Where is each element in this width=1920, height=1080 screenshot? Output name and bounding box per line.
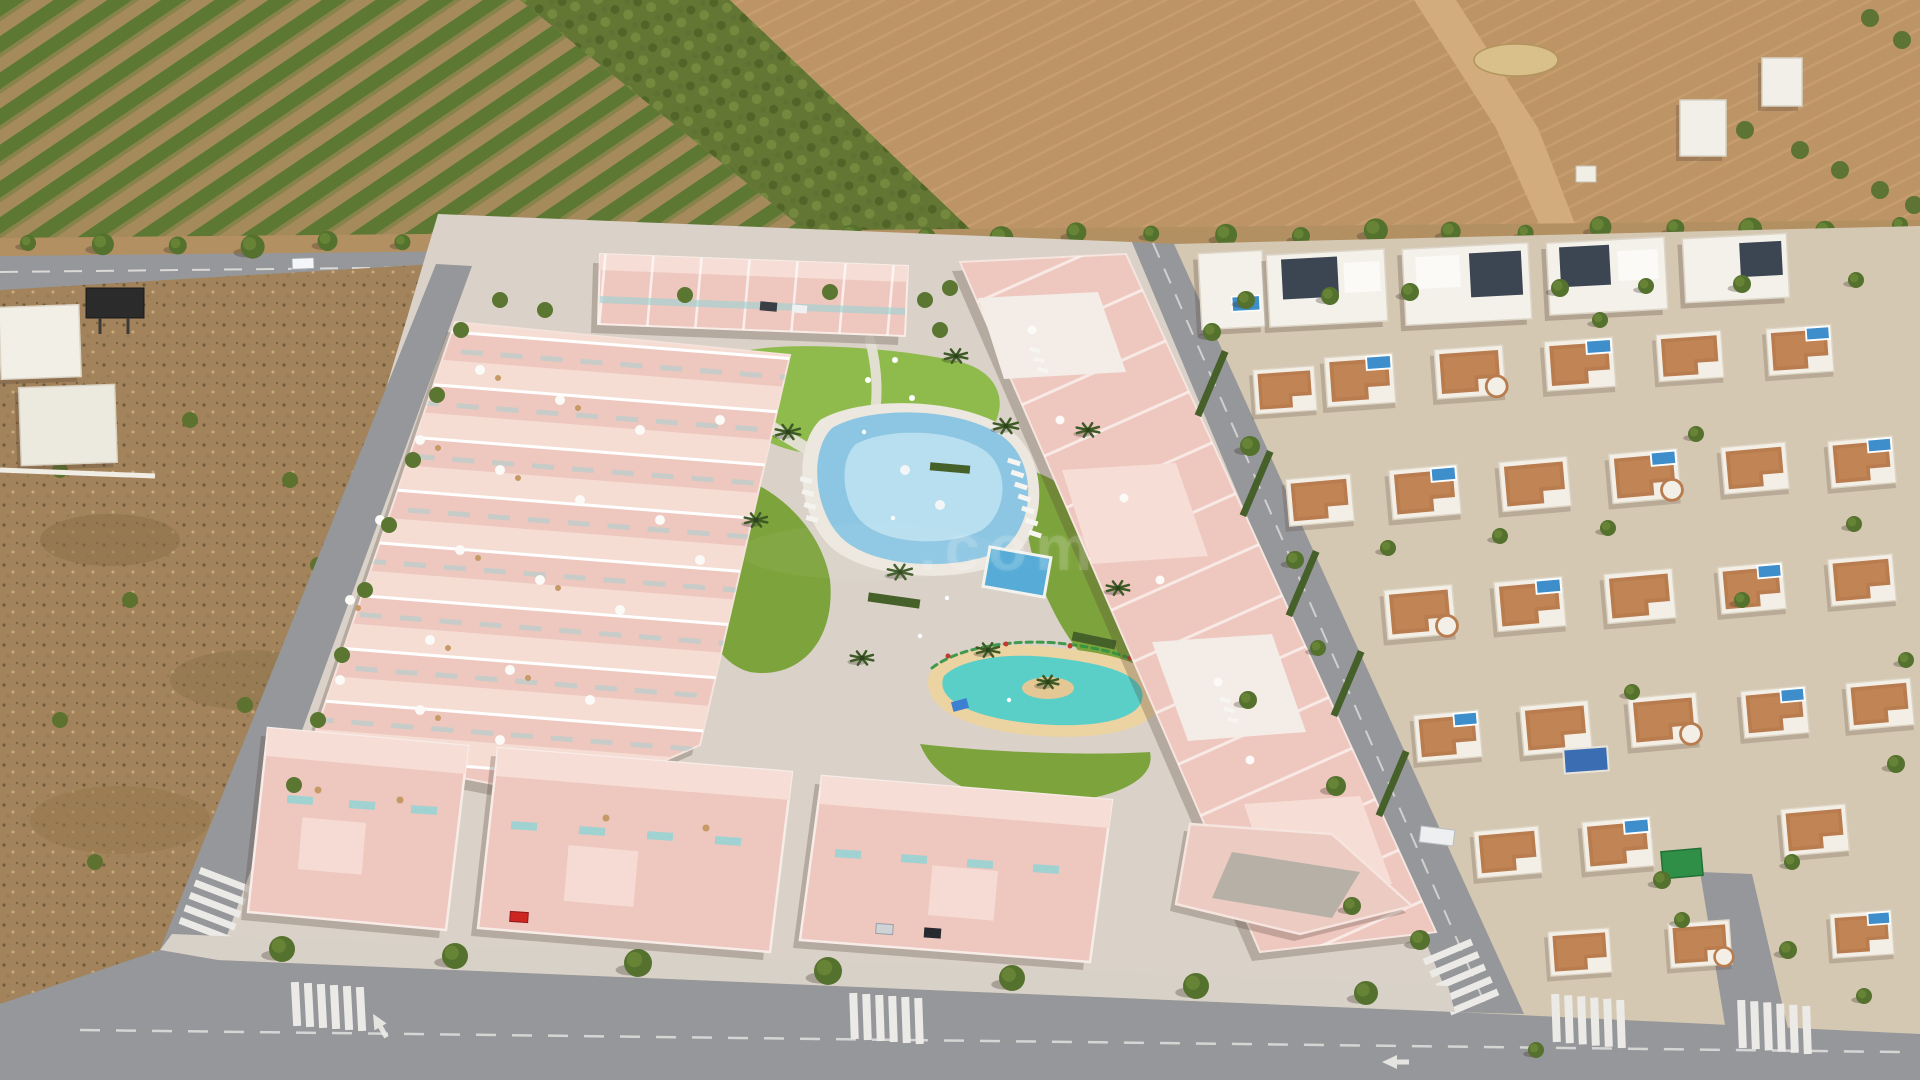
crosswalk-intersection-east-bar [1737,1000,1747,1048]
street-tree-highlight [1592,218,1604,230]
crosswalk-bottom-center-bar [875,995,885,1041]
crosswalk-intersection-east-bar [1776,1003,1786,1051]
block-C-umbrellas-dot [1156,576,1165,585]
tree-highlight [1850,274,1859,283]
block-C-umbrellas-dot [1246,756,1255,765]
villa [1469,826,1543,884]
villa [1379,584,1459,645]
block-B-umbrellas-dot [505,665,515,675]
parked-car-red [510,911,529,922]
tree-highlight [1186,976,1200,990]
villa [1762,324,1835,381]
dev-shrubs-west-dot [453,322,469,338]
tree-highlight [1676,914,1685,923]
entrance-court-trees-dot [492,292,508,308]
modern-house-4-roof [1739,241,1783,277]
crosswalk-intersection-east-bar [1763,1002,1773,1050]
covered-private-pool [1563,746,1609,773]
block-B-umbrellas-dot [345,595,355,605]
scene-svg [0,0,1920,1080]
garden-sculptures-dot [892,357,898,363]
palm-crown [860,656,865,661]
block-B-furniture-dot [445,645,451,651]
block-B-umbrellas-dot [635,425,645,435]
street-tree-highlight [396,236,405,245]
villa-pool [1366,355,1392,370]
tree-highlight [1288,553,1298,563]
entrance-court-trees-dot [677,287,693,303]
entrance-court-trees-dot [537,302,553,318]
field-edge-trees-dot [1831,161,1849,179]
block-B-furniture-dot [525,675,531,681]
crosswalk-bottom-center-bar [849,993,859,1039]
dev-shrubs-west-dot [310,712,326,728]
scrub-shrubs-dot [237,697,253,713]
south-block-3-roof-terrace [928,865,998,921]
street-tree-highlight [1294,229,1304,239]
tree-highlight [1848,518,1857,527]
dev-shrubs-west-dot [381,517,397,533]
tree-highlight [1640,280,1649,289]
people-figures-dot [891,516,895,520]
field-house-2 [1762,58,1802,106]
villa [1716,442,1790,500]
block-B-umbrellas-dot [535,575,545,585]
palm-crown [1046,680,1051,685]
crosswalk-intersection-west-bar [1551,994,1561,1042]
villa-pool [1780,688,1804,703]
tree-highlight [272,939,286,953]
field-hut [1576,166,1596,182]
block-B-umbrellas-dot [335,675,345,685]
tree-highlight [1736,594,1745,603]
palm-crown [1116,586,1121,591]
tree-highlight [445,946,459,960]
garden-sculptures-dot [909,395,915,401]
villa [1623,692,1703,753]
south-block-2-roof-table-dot [703,825,710,832]
palm-crown [1086,428,1091,433]
block-B-umbrellas-dot [415,705,425,715]
dev-shrubs-west-dot [405,452,421,468]
car-block-A-dark [760,301,778,311]
crosswalk-intersection-west-bar [1590,997,1600,1045]
palm-crown [786,430,791,435]
block-B-furniture-dot [475,555,481,561]
villa-turret [1486,375,1508,397]
south-block-1-roof-terrace [298,817,366,874]
villa-turret [1714,947,1734,967]
scrub-shrubs-dot [282,472,298,488]
people-figures-dot [1007,698,1011,702]
tree-highlight [1594,314,1603,323]
tree-highlight [1345,899,1355,909]
tree-highlight [1205,325,1215,335]
parked-car-silver [876,923,894,934]
south-block-2-roof-table-dot [603,815,610,822]
tree-highlight [1328,778,1339,789]
villa [1384,464,1462,525]
field-edge-trees-dot [1871,181,1889,199]
tree-highlight [1323,289,1333,299]
tree-highlight [1494,530,1503,539]
dev-shrubs-west-dot [334,647,350,663]
villa-turret [1661,479,1684,502]
block-B-umbrellas-dot [425,635,435,645]
tree-highlight [1889,757,1899,767]
crosswalk-bottom-center-bar [901,997,911,1043]
block-B-umbrellas-dot [555,395,565,405]
block-C-umbrellas-dot [1056,416,1065,425]
villa [1841,678,1915,736]
tree-highlight [817,960,832,975]
street-tree-highlight [1519,226,1528,235]
block-B-umbrellas-dot [495,465,505,475]
villa-pool [1453,712,1477,727]
street-tree-highlight [1217,226,1229,238]
tree-highlight [1690,428,1699,437]
south-block-2-roof-terrace [564,845,639,907]
palm-crown [754,518,759,523]
crosswalk-bottom-center-bar [914,998,924,1044]
tree-highlight [1382,542,1391,551]
tree-highlight [1786,856,1795,865]
street-tree-highlight [94,235,106,247]
scrub-shrubs-dot [122,592,138,608]
corner-white-building [1198,250,1266,329]
block-B-furniture-dot [495,375,501,381]
tree-highlight [1412,932,1423,943]
people-figures-dot [862,430,866,434]
field-edge-trees-dot [1861,9,1879,27]
villa [1577,816,1655,877]
street-tree-highlight [1145,227,1154,236]
scrub-shrubs-dot [87,854,103,870]
villa [1604,448,1684,509]
block-B-umbrellas-dot [585,695,595,705]
villa [1823,436,1897,494]
crosswalk-intersection-west-bar [1577,996,1587,1044]
palm-crown [954,354,959,359]
street-tree-highlight [1443,224,1454,235]
tree-highlight [1781,943,1791,953]
crosswalk-intersection-west-bar [1564,995,1574,1043]
dev-shrubs-west-dot [429,387,445,403]
villa [1664,920,1734,974]
dev-shrubs-west-dot [357,582,373,598]
villa [1281,474,1355,532]
villa-turret [1436,615,1459,638]
west-villa-1 [0,305,81,380]
villa [1826,910,1895,964]
scrub-shrubs-dot [182,412,198,428]
scrub-dark-patch-3 [30,786,210,854]
tree-highlight [1239,293,1249,303]
villa [1539,337,1616,397]
field-edge-trees-dot [1791,141,1809,159]
modern-house-3-terrace [1617,249,1659,281]
parked-car-black [924,927,942,938]
modern-house-2-roof [1469,251,1523,298]
tree-highlight [1602,522,1611,531]
tree-highlight [1241,693,1251,703]
block-B-umbrellas-dot [695,555,705,565]
kids-fence-posts-dot [946,654,951,659]
field-edge-trees-dot [1893,31,1911,49]
tree-highlight [1553,281,1563,291]
palm-crown [1004,424,1009,429]
crosswalk-intersection-west-bar [1603,999,1613,1047]
block-B-umbrellas-dot [615,605,625,615]
entrance-court-trees-dot [942,280,958,296]
villa [1652,330,1725,387]
villa [1494,456,1572,517]
block-C-umbrellas-dot [1120,494,1129,503]
block-B-umbrellas-dot [475,365,485,375]
villa-pool [1536,578,1562,593]
block-A-unit-dividers [598,254,908,336]
pool-floats-dot [935,500,945,510]
tree-highlight [1312,642,1321,651]
villa [1544,928,1613,982]
villa [1823,554,1897,612]
villa [1599,568,1677,629]
field-edge-trees-dot [1736,121,1754,139]
villa [1489,576,1567,637]
tree-highlight [1002,968,1016,982]
block-B-umbrellas-dot [715,415,725,425]
villa-turret [1680,723,1703,746]
street-tree-highlight [22,237,31,246]
villa [1429,345,1508,405]
garden-sculptures-dot [865,377,871,383]
block-B-umbrellas-dot [415,435,425,445]
south-block-1-roof-table-dot [397,797,404,804]
kids-fence-posts-dot [1004,642,1009,647]
watermark-smudge [740,524,1000,580]
car-block-A-white [792,304,808,313]
crosswalk-intersection-east-bar [1789,1005,1799,1053]
tree-highlight [1655,873,1665,883]
villa-pool [1867,438,1891,453]
tree-highlight [1858,990,1867,999]
street-tree-highlight [171,238,181,248]
block-B-furniture-dot [435,715,441,721]
tree-highlight [1900,654,1909,663]
villa [1736,686,1810,744]
white-car-top-road [292,258,314,270]
entrance-court-trees-dot [822,284,838,300]
tree-highlight [1356,983,1369,996]
modern-house-3-roof [1559,245,1611,288]
crosswalk-intersection-west-bar [1616,1000,1626,1048]
villa [1409,710,1483,768]
villa [1776,804,1850,862]
white-suv [1419,826,1455,846]
crosswalk-intersection-east-bar [1750,1001,1760,1049]
modern-house-2-terrace [1415,255,1461,289]
crosswalk-bottom-center-bar [862,994,872,1040]
tree-highlight [1530,1044,1539,1053]
south-block-1-roof-table-dot [315,787,322,794]
dev-shrubs-west-dot [286,777,302,793]
block-B-furniture-dot [575,405,581,411]
tree-highlight [1403,285,1413,295]
crosswalk-intersection-east-bar [1802,1006,1812,1054]
modern-house-1-terrace [1343,261,1381,293]
block-B-umbrellas-dot [575,495,585,505]
block-C-umbrellas-dot [1028,326,1037,335]
people-figures-dot [918,634,922,638]
block-B-furniture-dot [515,475,521,481]
scene-objects [0,0,1920,1080]
people-figures-dot [945,596,949,600]
block-B-umbrellas-dot [655,515,665,525]
palm-crown [986,648,991,653]
hay-patch [1474,44,1558,76]
villa [1319,353,1396,413]
aerial-render-photo: .com [0,0,1920,1080]
street-tree-highlight [1894,219,1903,228]
villa-pool [1431,466,1457,481]
tree-highlight [1626,686,1635,695]
villa-pool [1806,326,1830,340]
entrance-court-trees-dot [917,292,933,308]
pool-floats-dot [900,465,910,475]
crosswalk-bottom-center-bar [888,996,898,1042]
block-B-umbrellas-dot [455,545,465,555]
scrub-dark-patch-1 [40,514,180,566]
entrance-court-trees-dot [932,322,948,338]
villa-pool [1867,912,1890,925]
field-house-1 [1680,100,1726,156]
west-villa-2 [19,384,118,465]
tree-highlight [1242,438,1253,449]
street-tree-highlight [1068,224,1079,235]
villa-pool [1651,450,1677,465]
kids-fence-posts-dot [1068,644,1073,649]
villa [1249,366,1318,420]
block-C-umbrellas-dot [1214,678,1223,687]
street-tree-highlight [243,237,256,250]
scrub-shrubs-dot [52,712,68,728]
street-tree-highlight [1366,221,1379,234]
block-B-umbrellas-dot [495,735,505,745]
villa [1713,562,1787,620]
tree-highlight [1735,277,1745,287]
block-B-furniture-dot [555,585,561,591]
villa-pool [1757,564,1781,579]
villa-pool [1624,818,1650,833]
tree-highlight [627,952,642,967]
billboard [86,288,144,318]
villa-pool [1586,339,1612,354]
block-B-furniture-dot [435,445,441,451]
block-B-furniture-dot [355,605,361,611]
street-tree-highlight [1668,221,1678,231]
street-tree-highlight [320,233,331,244]
